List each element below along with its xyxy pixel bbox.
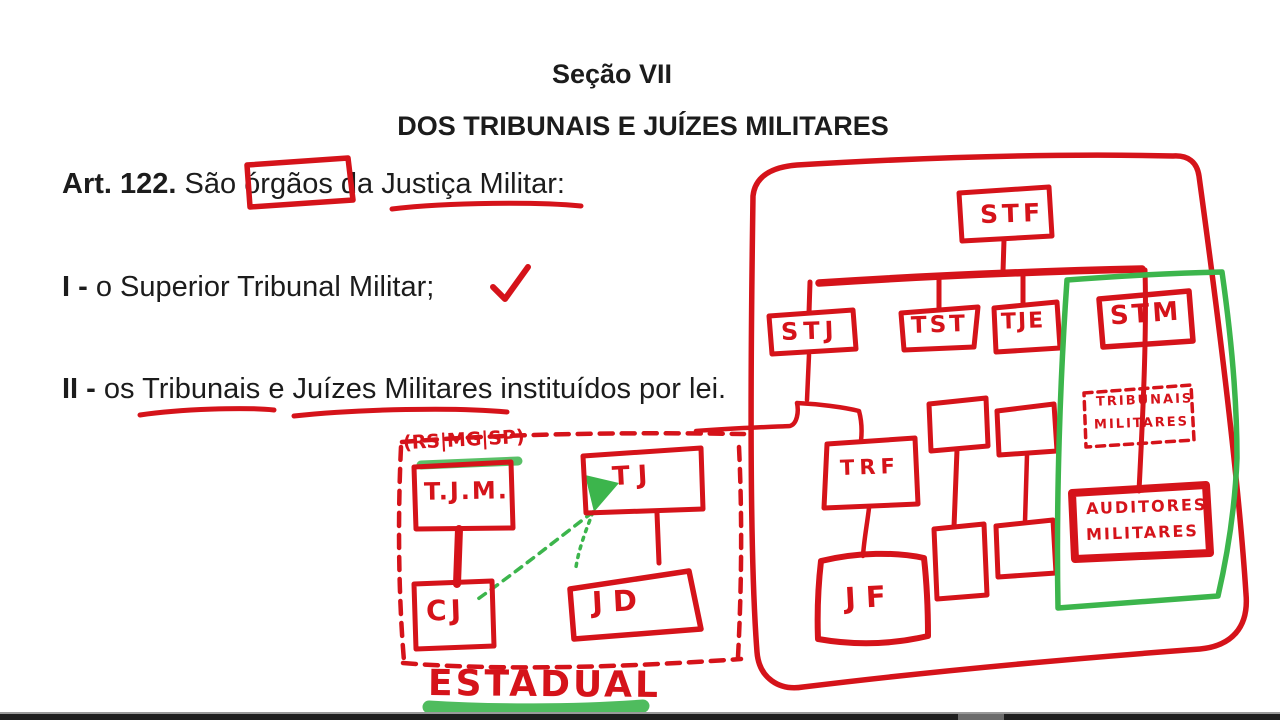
tjm-label: T.J.M. [424, 476, 509, 505]
article-mid: da [333, 168, 381, 200]
video-bottom-bar [0, 712, 1280, 720]
stj-label: STJ [781, 316, 840, 346]
article-label: Art. 122. [62, 168, 176, 200]
stj-riser [809, 282, 810, 313]
auditores-label-line1: AUDITORES [1086, 495, 1208, 518]
estadual-caption: ESTADUAL [428, 663, 661, 706]
item-II-underlined1: Tribunais [142, 373, 260, 405]
video-bottom-bar-segment [958, 714, 1004, 720]
tribunais-underline-annotation [140, 409, 274, 415]
jd-label: JD [591, 583, 648, 620]
lesson-slide: Seção VII DOS TRIBUNAIS E JUÍZES MILITAR… [0, 0, 1280, 720]
article-122-line: Art. 122. São órgãos da Justiça Militar: [62, 167, 565, 202]
article-boxed-word: órgãos [244, 168, 333, 200]
item-II-mid: e [260, 373, 292, 405]
article-pre: São [176, 168, 244, 200]
tst-sub-box-2 [934, 524, 987, 599]
tjm-cj-link [457, 529, 459, 584]
item-I-numeral: I - [62, 271, 88, 303]
justica-militar-underline-annotation [392, 203, 581, 209]
stf-trunk-link [1003, 240, 1004, 272]
section-heading: Seção VII [552, 58, 672, 90]
tje-sub-link [1025, 455, 1027, 522]
item-II-numeral: II - [62, 373, 96, 405]
item-I-text: o Superior Tribunal Militar; [88, 271, 435, 303]
tst-sub-link [954, 450, 957, 527]
article-suffix: : [557, 168, 565, 200]
cj-label: CJ [425, 593, 465, 627]
tribunais-militares-label-line2: MILITARES [1094, 414, 1190, 432]
jf-label: JF [844, 579, 896, 616]
estadual-dashed-left [399, 447, 404, 661]
item-I-line: I - o Superior Tribunal Militar; [62, 270, 434, 305]
trunk-line [819, 269, 1142, 283]
tj-label: TJ [611, 460, 656, 492]
trf-label: TRF [840, 454, 901, 480]
states-note-label: (RS|MG|SP) [403, 426, 526, 454]
checkmark-icon [493, 267, 528, 299]
item-II-line: II - os Tribunais e Juízes Militares ins… [62, 372, 726, 407]
tj-jd-link [657, 513, 659, 563]
tj-to-cj-dashed-link [475, 512, 593, 601]
estadual-dashed-right [738, 447, 741, 657]
estadual-green-underline [429, 706, 643, 710]
item-II-pre: os [96, 373, 142, 405]
stf-label: STF [980, 198, 1045, 229]
auditores-label-line2: MILITARES [1086, 521, 1199, 544]
tribunais-militares-label-line1: TRIBUNAIS [1096, 391, 1194, 409]
item-II-suffix: instituídos por lei. [492, 373, 726, 405]
item-II-underlined2: Juízes Militares [293, 373, 493, 405]
tst-sub-box-1 [929, 398, 988, 451]
tje-label: TJE [1001, 308, 1046, 335]
tj-to-jd-dotted-link [576, 512, 593, 567]
juizes-underline-annotation [294, 409, 507, 416]
stj-sub-riser [807, 355, 809, 400]
page-title: DOS TRIBUNAIS E JUÍZES MILITARES [397, 110, 889, 142]
tje-sub-box-1 [997, 404, 1057, 455]
stm-label: STM [1109, 297, 1182, 332]
tje-sub-box-2 [996, 520, 1056, 577]
tst-label: TST [911, 311, 969, 339]
estadual-to-federal-connector [696, 403, 862, 441]
trf-jf-link [863, 508, 869, 556]
article-underlined-phrase: Justiça Militar [381, 168, 557, 200]
estadual-diagram-sketch [399, 433, 744, 667]
tjm-green-highlight [421, 461, 518, 465]
